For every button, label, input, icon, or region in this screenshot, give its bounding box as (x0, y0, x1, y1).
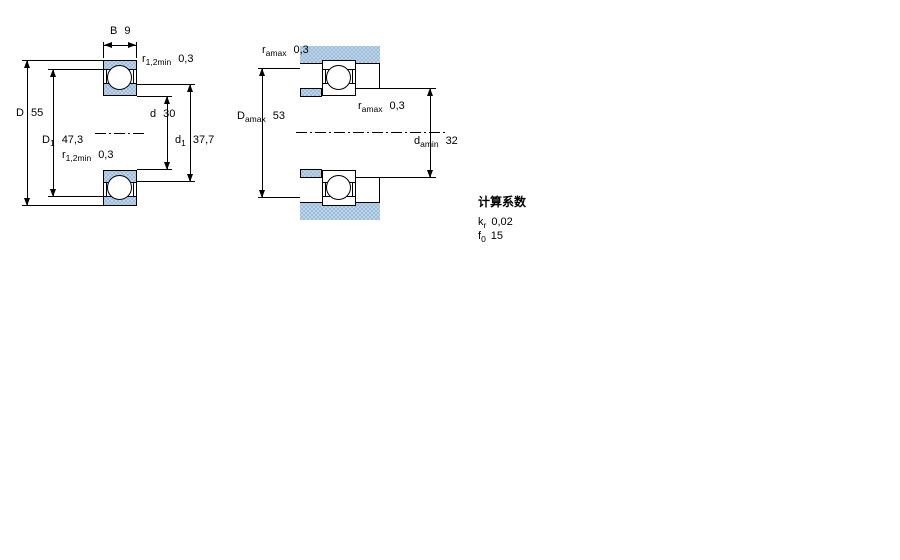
groove-edge-line (352, 182, 353, 197)
groove-edge-line (133, 69, 134, 84)
damin-dimension-line (430, 89, 431, 178)
shaft-shoulder-section-bottom (300, 169, 322, 178)
d55-extension-line-bottom (22, 205, 103, 206)
dim-label-shoulder-diameter-outer: D147,3 (42, 134, 83, 150)
ball (326, 65, 351, 90)
d30-arrow-up-icon (164, 96, 170, 104)
d55-arrow-up-icon (24, 60, 30, 68)
groove-edge-line (133, 182, 134, 197)
damin-arrow-up-icon (427, 88, 433, 96)
ball (107, 175, 132, 200)
right-bearing-top-section (322, 60, 356, 96)
b-arrow-left-icon (104, 42, 112, 48)
left-centerline (95, 133, 146, 134)
dim-label-chamfer-top: r1,2min0,3 (142, 53, 193, 69)
b-extension-line-right (136, 42, 137, 58)
d1-extension-line-top (48, 69, 103, 70)
ball (326, 175, 351, 200)
dim-label-shoulder-diameter-inner: d137,7 (175, 134, 214, 150)
damin-arrow-down-icon (427, 170, 433, 178)
dim-label-b: B9 (110, 25, 130, 41)
bearing-dimension-drawing: B9 D55 D147,3 r1,2min0,3 r1,2min0,3 d30 … (0, 0, 900, 560)
right-centerline (296, 132, 446, 133)
damax-arrow-up-icon (259, 68, 265, 76)
dim-label-housing-abutment: Damax53 (237, 110, 285, 126)
groove-edge-line (352, 69, 353, 84)
abutment-edge-line-top (379, 64, 380, 88)
d30-arrow-down-icon (164, 162, 170, 170)
d1-arrow-up-icon (50, 69, 56, 77)
dim-label-fillet-mid: ramax0,3 (358, 100, 405, 116)
dim-label-outer-diameter: D55 (16, 107, 43, 123)
dim-label-chamfer-mid: r1,2min0,3 (62, 149, 113, 165)
dim-label-bore-diameter: d30 (150, 108, 175, 124)
d1-arrow-down-icon (50, 189, 56, 197)
damax-arrow-down-icon (259, 190, 265, 198)
calculation-factors-title: 计算系数 (478, 195, 526, 209)
d55-arrow-down-icon (24, 198, 30, 206)
damin-extension-line-top (356, 88, 436, 89)
d1i-arrow-down-icon (187, 174, 193, 182)
d1-extension-line-bottom (48, 196, 103, 197)
damax-dimension-line (262, 69, 263, 198)
factor-row-f0: f015 (478, 230, 503, 246)
damin-extension-line-bottom (356, 177, 436, 178)
dim-label-shaft-abutment: damin32 (414, 135, 458, 151)
d55-dimension-line (27, 61, 28, 206)
d55-extension-line-top (22, 60, 103, 61)
b-arrow-right-icon (128, 42, 136, 48)
dim-label-fillet-top: ramax0,3 (262, 44, 309, 60)
abutment-edge-line-bottom (379, 178, 380, 202)
left-bearing-bottom-section (103, 170, 137, 206)
shaft-shoulder-section-top (300, 88, 322, 97)
left-bearing-top-section (103, 60, 137, 96)
d1i-arrow-up-icon (187, 84, 193, 92)
ball (107, 65, 132, 90)
right-bearing-bottom-section (322, 170, 356, 206)
